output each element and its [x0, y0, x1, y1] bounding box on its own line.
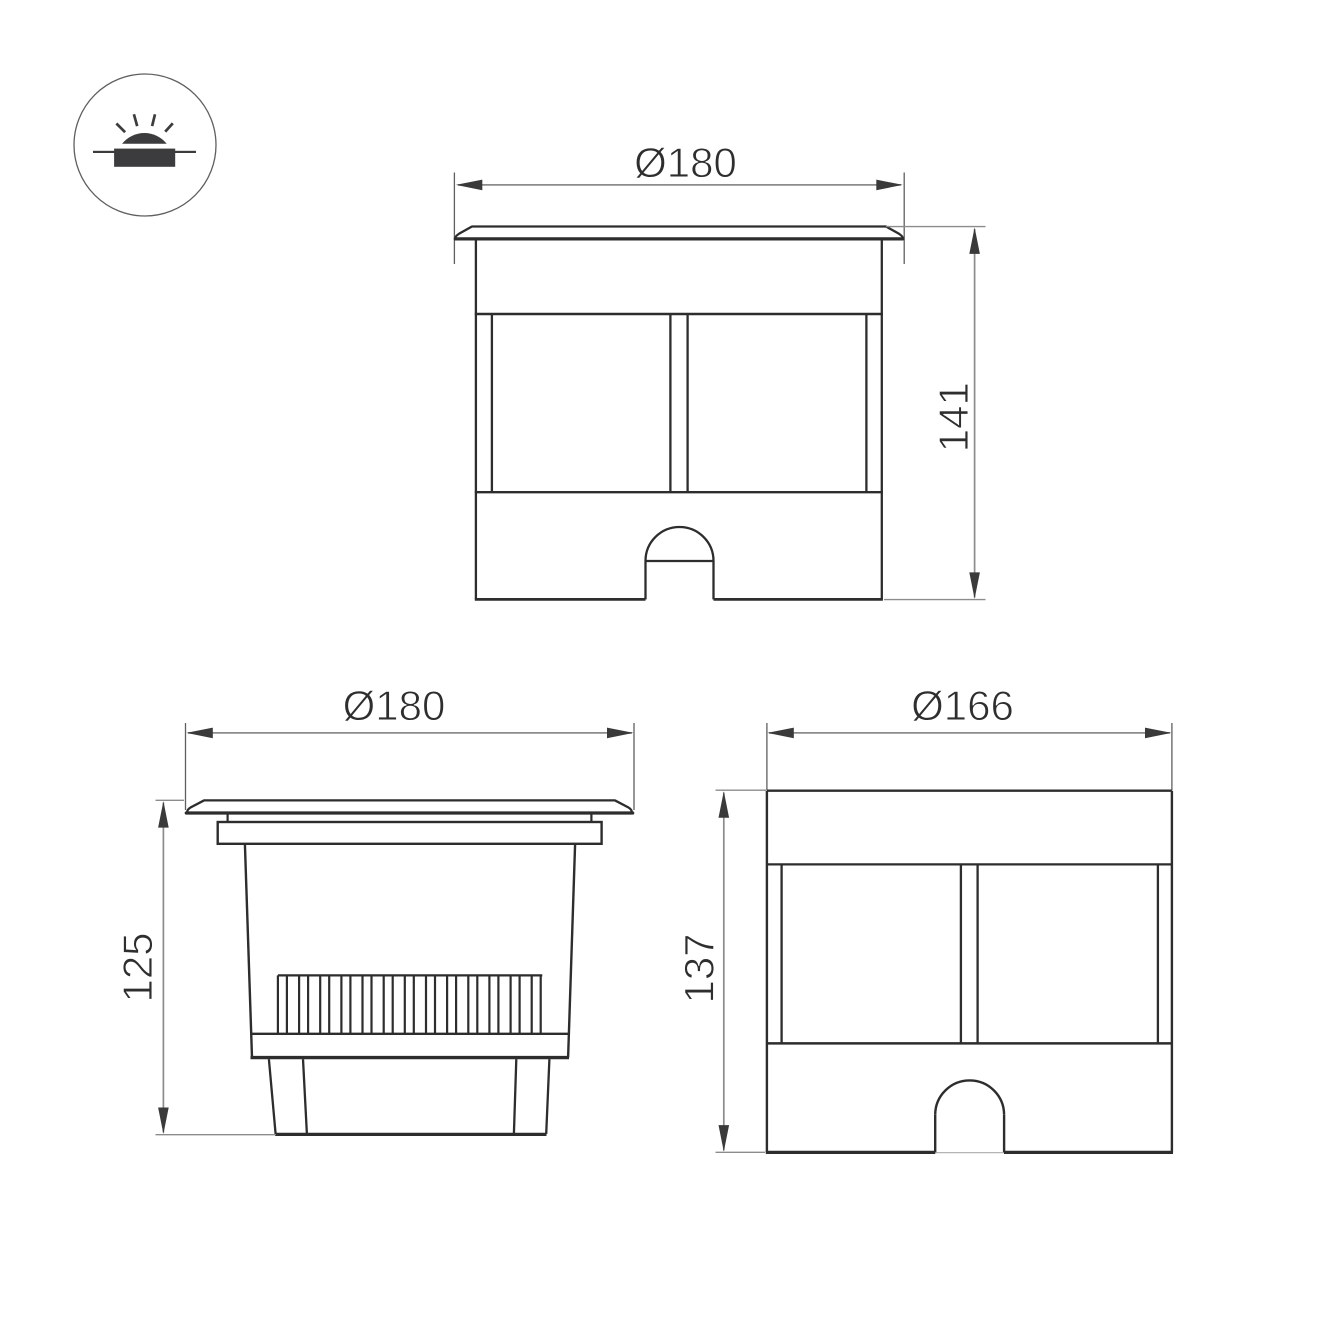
svg-text:Ø166: Ø166 [911, 682, 1014, 729]
svg-text:Ø180: Ø180 [634, 139, 737, 186]
svg-text:Ø180: Ø180 [343, 682, 446, 729]
svg-text:141: 141 [930, 382, 977, 452]
svg-text:137: 137 [676, 933, 723, 1003]
svg-text:125: 125 [114, 932, 161, 1002]
